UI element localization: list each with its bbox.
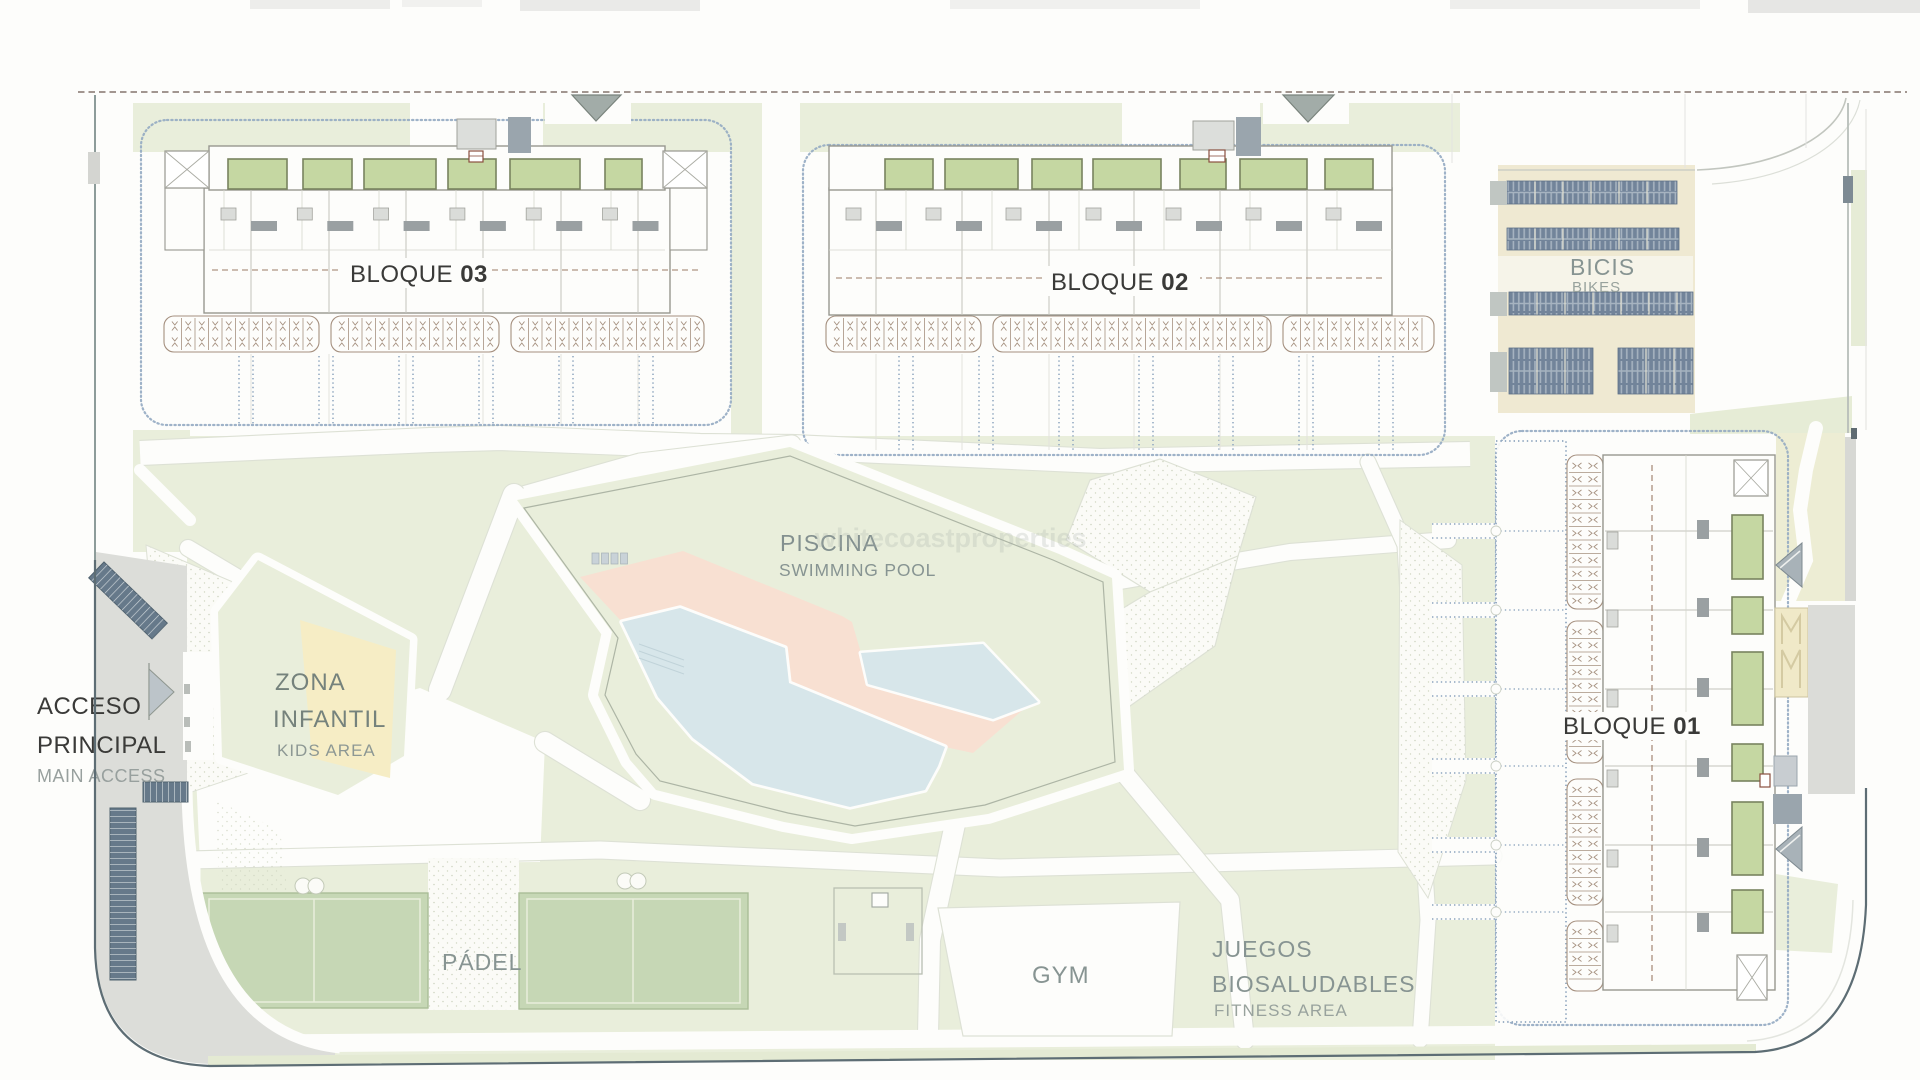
svg-text:MAIN ACCESS: MAIN ACCESS	[37, 766, 166, 786]
svg-text:JUEGOS: JUEGOS	[1212, 936, 1313, 962]
svg-text:KIDS AREA: KIDS AREA	[277, 741, 376, 760]
svg-text:GYM: GYM	[1032, 962, 1090, 989]
svg-text:PRINCIPAL: PRINCIPAL	[37, 732, 166, 759]
svg-text:BLOQUE 01: BLOQUE 01	[1563, 713, 1701, 740]
svg-text:whitecoastproperties: whitecoastproperties	[814, 523, 1087, 553]
svg-text:PÁDEL: PÁDEL	[442, 949, 522, 975]
svg-text:FITNESS AREA: FITNESS AREA	[1214, 1001, 1348, 1020]
svg-text:BIKES: BIKES	[1572, 279, 1621, 296]
svg-text:SWIMMING POOL: SWIMMING POOL	[779, 560, 936, 580]
svg-text:BIOSALUDABLES: BIOSALUDABLES	[1212, 971, 1415, 997]
svg-text:BLOQUE 03: BLOQUE 03	[350, 261, 488, 288]
svg-text:ZONA: ZONA	[275, 669, 346, 696]
svg-text:BLOQUE 02: BLOQUE 02	[1051, 269, 1189, 296]
svg-text:BICIS: BICIS	[1570, 254, 1635, 280]
svg-text:ACCESO: ACCESO	[37, 693, 141, 720]
svg-text:INFANTIL: INFANTIL	[273, 706, 386, 733]
